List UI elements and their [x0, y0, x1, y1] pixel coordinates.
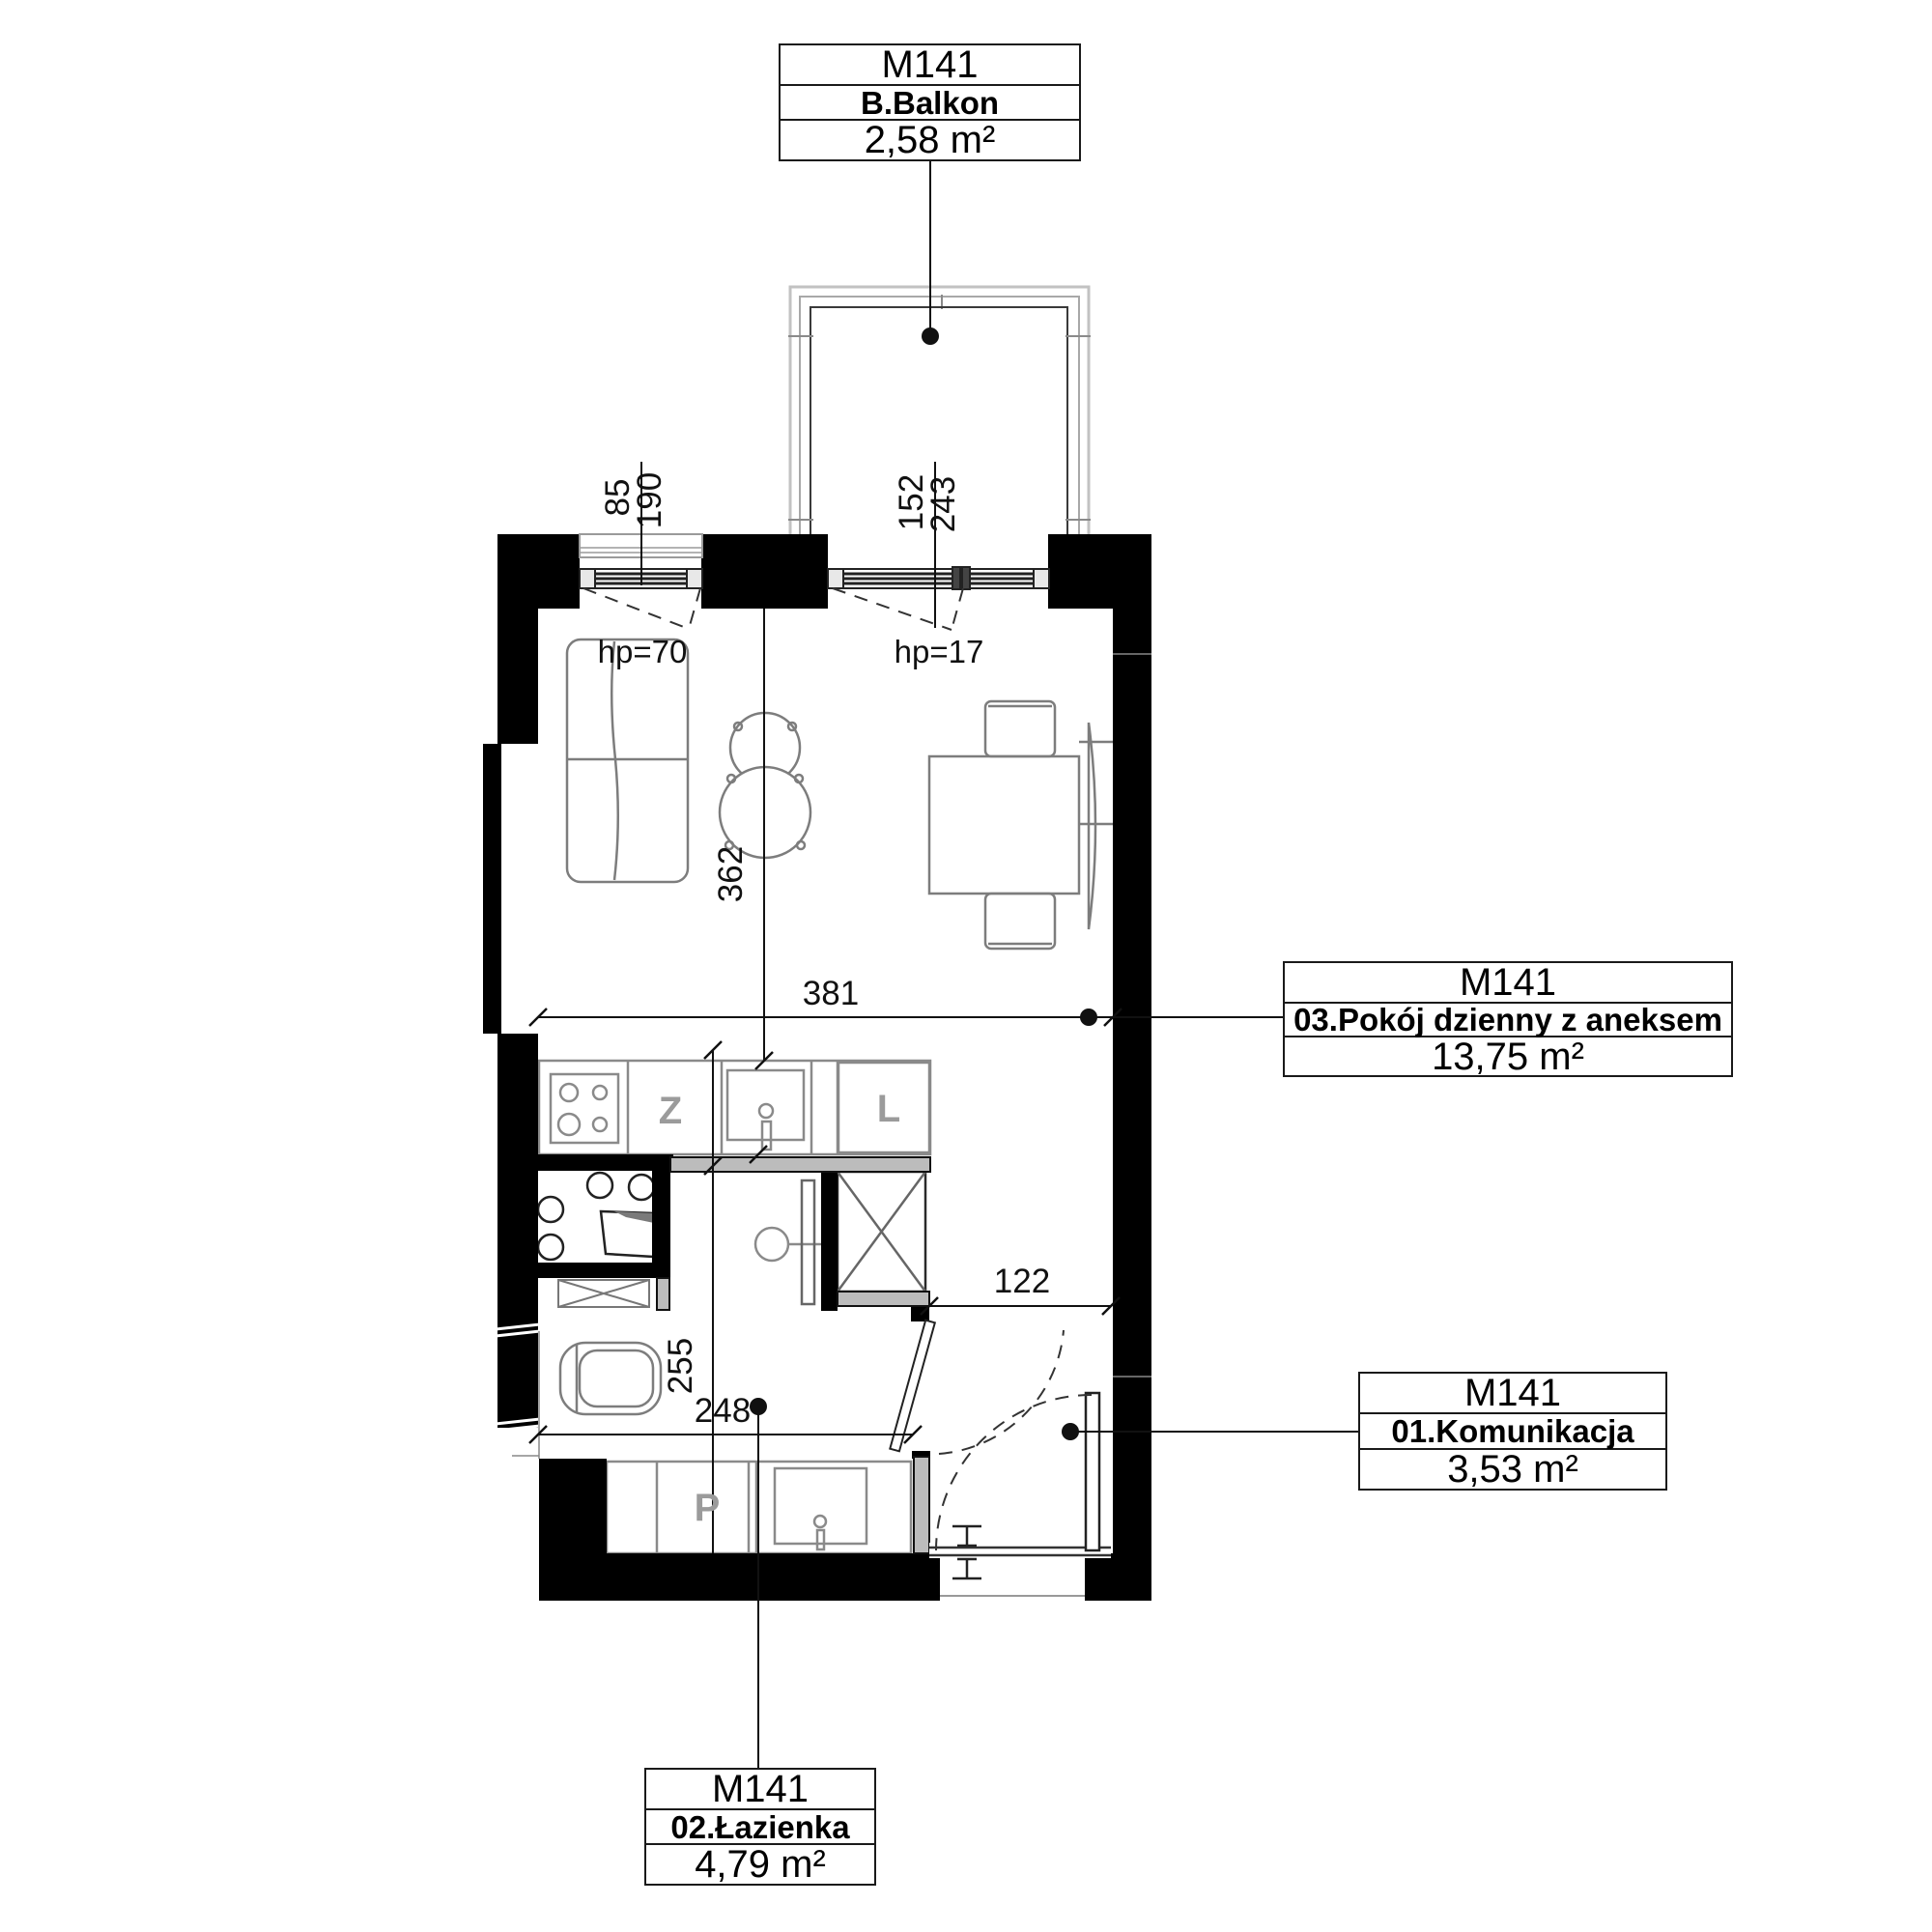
dining-table [929, 701, 1113, 949]
komunikacja-code: M141 [1360, 1374, 1665, 1414]
wall-top-left-block [497, 534, 580, 609]
label-box-komunikacja: M141 01.Komunikacja 3,53 m² [1358, 1372, 1667, 1491]
stove [551, 1074, 618, 1143]
dim-living-width: 381 [803, 975, 859, 1012]
wall-top-pier [701, 534, 828, 609]
partition-corridor [914, 1457, 929, 1553]
leader-dot-balkon [922, 327, 939, 345]
wall-left-thin [483, 744, 501, 1034]
floorplan-canvas: 381 362 85 190 152 243 hp=70 hp=17 122 2… [0, 0, 1932, 1932]
wall-bottom-b [1085, 1553, 1151, 1601]
lazienka-name: 02.Łazienka [646, 1810, 874, 1845]
dimension-lines [529, 158, 1358, 1770]
kitchen-counter [539, 1061, 930, 1154]
wall-bottom-a [607, 1553, 940, 1601]
leader-dot-pokoj [1080, 1009, 1097, 1026]
window-balcony-frame [828, 567, 1049, 589]
komunikacja-name: 01.Komunikacja [1360, 1414, 1665, 1450]
wall-shower-right [821, 1171, 838, 1311]
wall-top-right-block [1048, 534, 1151, 609]
washer-box [558, 1280, 649, 1307]
wall-shaft-bottom [526, 1263, 670, 1278]
pokoj-name: 03.Pokój dzienny z aneksem [1285, 1004, 1731, 1037]
kitchen-sink [727, 1070, 804, 1150]
bathroom-door-leaf [890, 1321, 935, 1452]
partition-vent-bottom [838, 1292, 929, 1306]
label-box-lazienka: M141 02.Łazienka 4,79 m² [644, 1768, 876, 1886]
letter-l-fridge: L [877, 1088, 900, 1130]
wall-panel [1089, 723, 1095, 929]
letter-z-cabinet: Z [659, 1090, 682, 1132]
furniture-layer [539, 639, 1113, 1553]
bathroom-door-swing [939, 1330, 1064, 1454]
lazienka-area: 4,79 m² [646, 1845, 874, 1884]
hp-balcony-label: hp=17 [895, 634, 984, 669]
balkon-code: M141 [781, 45, 1079, 86]
lazienka-code: M141 [646, 1770, 874, 1810]
wall-seams [512, 654, 1151, 1459]
dim-bath-width: 248 [695, 1392, 751, 1430]
pipe-shaft [538, 1173, 654, 1260]
leader-dot-komunikacja [1062, 1423, 1079, 1440]
hp-left-label: hp=70 [598, 634, 688, 669]
wall-left-lower [497, 1034, 538, 1428]
dim-corridor-width: 122 [994, 1263, 1050, 1300]
entrance-door-leaf [1086, 1393, 1099, 1550]
leader-dot-lazienka [750, 1398, 767, 1415]
balkon-name: B.Balkon [781, 86, 1079, 121]
dim-window-left-b: 190 [631, 472, 668, 528]
toilet [560, 1343, 661, 1414]
bath-sink [775, 1468, 867, 1549]
balkon-area: 2,58 m² [781, 121, 1079, 159]
shower [755, 1180, 821, 1304]
pokoj-code: M141 [1285, 963, 1731, 1004]
sofa [567, 639, 688, 882]
walls [483, 534, 1151, 1601]
komunikacja-area: 3,53 m² [1360, 1450, 1665, 1489]
vent-shaft [838, 1172, 925, 1292]
dim-living-depth: 362 [712, 846, 750, 902]
dim-balcony-window-b: 243 [924, 476, 962, 532]
dim-bath-depth: 255 [662, 1338, 699, 1394]
pokoj-area: 13,75 m² [1285, 1037, 1731, 1076]
wall-right [1113, 609, 1151, 1601]
partition-post [657, 1278, 669, 1310]
wall-bottom-left-block [539, 1459, 607, 1601]
wall-shaft-right [652, 1171, 670, 1278]
wall-bath-top [526, 1154, 673, 1171]
label-box-balkon: M141 B.Balkon 2,58 m² [779, 43, 1081, 161]
letter-p-washer: P [695, 1487, 721, 1529]
label-box-pokoj: M141 03.Pokój dzienny z aneksem 13,75 m² [1283, 961, 1733, 1077]
wall-left-upper [497, 609, 538, 744]
